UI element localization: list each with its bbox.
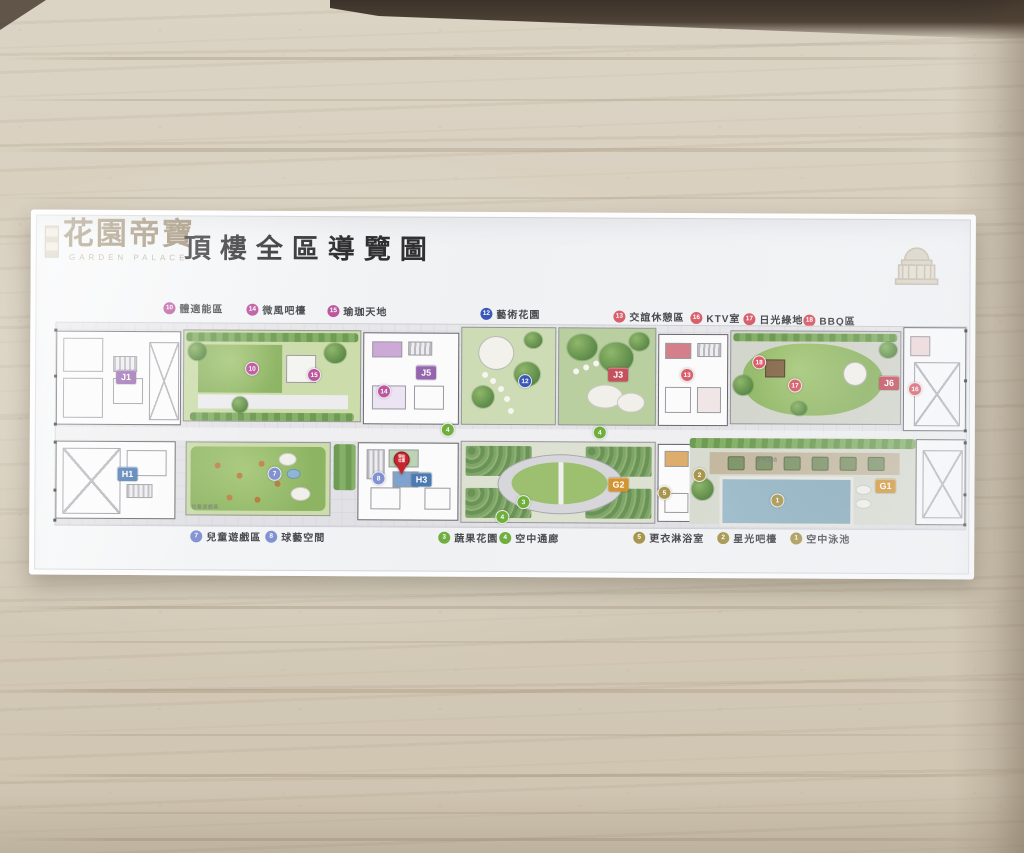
legend-item: 17 日光綠地: [743, 311, 803, 326]
building-badge-j6: J6: [879, 376, 899, 390]
splash-pad: [287, 469, 301, 479]
guide-map-sign-panel: 花園帝寶 GARDEN PALACE 頂樓全區導覽圖 10 體適能區 14 微風…: [29, 210, 976, 580]
fitness-yoga-garden: [183, 329, 361, 422]
legend-label: 藝術花園: [496, 306, 540, 321]
room: [910, 336, 930, 356]
legend-number-badge: 1: [790, 532, 802, 544]
tree: [524, 332, 542, 348]
legend-number-badge: 3: [438, 531, 450, 543]
page-title: 頂樓全區導覽圖: [184, 226, 436, 266]
legend-number-badge: 10: [163, 302, 175, 314]
area-caption-pool: 空中泳池: [756, 456, 778, 463]
legend-item: 1 空中泳池: [790, 531, 850, 546]
wall-streak: [0, 197, 1024, 199]
lounger: [855, 499, 871, 509]
brand-name-english: GARDEN PALACE: [63, 253, 195, 263]
legend-item: 15 瑜珈天地: [327, 303, 387, 318]
wall-streak: [0, 99, 1024, 101]
wall-streak: [0, 57, 1024, 60]
terrace: [149, 342, 179, 420]
tree: [791, 402, 807, 416]
building-badge-h1: H1: [118, 467, 138, 481]
brand-logo: 花園帝寶 GARDEN PALACE: [45, 218, 195, 263]
legend-item: 13 交誼休憩區: [613, 309, 684, 324]
legend-number-badge: 5: [633, 531, 645, 543]
map-marker-sky-pool: 1: [770, 493, 784, 507]
legend-item: 8 球藝空間: [265, 529, 325, 544]
room: [665, 451, 689, 467]
legend-item: 7 兒童遊戲區: [190, 528, 261, 543]
path: [198, 394, 348, 409]
wall-bottom-shade: [0, 789, 1024, 853]
pin-tail: [397, 465, 407, 479]
legend-label: 交誼休憩區: [629, 309, 684, 324]
legend-number-badge: 17: [743, 313, 755, 325]
tree: [567, 334, 597, 360]
building-crest-icon: [889, 242, 945, 298]
building-badge-h3: H3: [412, 473, 432, 487]
legend-label: 星光吧檯: [733, 530, 777, 545]
map-marker-star-bar: 2: [693, 468, 707, 482]
room: [665, 343, 691, 359]
map-marker-sun-lawn: 17: [788, 378, 802, 392]
map-marker-corridor: 4: [495, 510, 509, 524]
tree: [879, 342, 897, 358]
terrace: [62, 448, 120, 514]
rooftop-floor-plan: J1 J5 J3 J6 H1 H3 G2 G1 10 15 14 12 13 1…: [54, 322, 967, 531]
wall-streak: [0, 641, 1024, 643]
map-marker-art-garden: 12: [518, 374, 532, 388]
legend-label: 日光綠地: [759, 311, 803, 326]
building-outline-top-right: [903, 327, 967, 431]
lawn: [190, 446, 325, 511]
tree: [324, 343, 346, 363]
terrace: [922, 450, 962, 518]
map-marker-bbq: 18: [752, 355, 766, 369]
legend-label: 空中通廊: [515, 530, 559, 545]
wall-streak: [0, 606, 1024, 609]
map-marker-ball-space: 8: [372, 471, 386, 485]
play-mound: [279, 453, 297, 466]
map-marker-lounge: 13: [680, 368, 694, 382]
logo-seal-mark: [45, 226, 59, 258]
map-marker-fitness: 10: [245, 362, 259, 376]
building-outline-bottom-right: [915, 439, 965, 525]
legend-number-badge: 13: [613, 310, 625, 322]
legend-item: 10 體適能區: [163, 300, 223, 315]
legend-number-badge: 15: [327, 305, 339, 317]
legend-label: 兒童遊戲區: [206, 528, 261, 543]
room: [665, 387, 691, 413]
legend-label: 空中泳池: [806, 531, 850, 546]
cabana: [812, 457, 829, 471]
seating-deck: [843, 362, 867, 386]
brand-name: 花園帝寶: [63, 218, 195, 250]
legend-item: 12 藝術花園: [480, 306, 540, 321]
hedge: [186, 332, 358, 342]
cabana: [784, 456, 801, 470]
wall-streak: [0, 774, 1024, 777]
building-badge-j1: J1: [116, 370, 136, 384]
building-core-j3: [658, 334, 728, 426]
legend-item: 2 星光吧檯: [717, 530, 777, 545]
legend-label: 蔬果花園: [454, 530, 498, 545]
hedge: [333, 444, 355, 490]
room: [372, 341, 402, 357]
legend-label: 體適能區: [179, 300, 223, 315]
dimension-ticks-right: [964, 329, 967, 332]
building-badge-g1: G1: [875, 479, 895, 493]
stepping-stones: [482, 372, 488, 378]
map-marker-corridor: 4: [441, 423, 455, 437]
legend-number-badge: 12: [480, 307, 492, 319]
swimming-pool: [719, 476, 853, 527]
circular-plaza: [478, 336, 514, 370]
legend-item: 16 KTV室: [690, 310, 740, 325]
legend-label: KTV室: [706, 310, 740, 325]
legend-label: 球藝空間: [281, 529, 325, 544]
you-are-here-pin: 現在位置: [394, 451, 410, 477]
play-equipment-dots: [215, 462, 221, 468]
art-garden-west: [461, 327, 557, 425]
hedge: [690, 438, 916, 449]
tree: [629, 333, 649, 351]
bbq-pavilion: [765, 359, 785, 377]
sculpture-rock: [617, 393, 645, 413]
stepping-stones: [573, 368, 579, 374]
legend-number-badge: 4: [499, 531, 511, 543]
map-marker-breeze-bar: 14: [377, 384, 391, 398]
wall-top-shadow-band: [330, 0, 1024, 40]
stairs: [126, 484, 152, 498]
hedge: [190, 412, 354, 421]
legend-label: 更衣淋浴室: [649, 530, 704, 545]
legend-item: 14 微風吧檯: [246, 302, 306, 317]
tree: [232, 397, 248, 413]
legend-number-badge: 8: [265, 530, 277, 542]
map-marker-playground: 7: [268, 467, 282, 481]
building-badge-j5: J5: [416, 366, 436, 380]
legend-number-badge: 2: [717, 532, 729, 544]
pin-label: 現在位置: [398, 456, 406, 464]
legend-item: 5 更衣淋浴室: [633, 530, 704, 545]
building-badge-j3: J3: [608, 368, 628, 382]
room: [63, 338, 103, 372]
legend-label: 微風吧檯: [262, 302, 306, 317]
legend-label: 瑜珈天地: [343, 303, 387, 318]
legend-number-badge: 14: [246, 303, 258, 315]
wall-corner-shadow: [0, 0, 46, 30]
legend-number-badge: 16: [690, 311, 702, 323]
sunlight-lawn-garden: [730, 330, 901, 425]
stairs: [697, 343, 721, 357]
legend-item: 4 空中通廊: [499, 530, 559, 545]
map-marker-ktv: 16: [908, 382, 922, 396]
cabana: [728, 456, 745, 470]
stairs: [408, 342, 432, 356]
building-core-j5: [363, 332, 459, 425]
lawn: [198, 344, 282, 392]
hedge: [733, 333, 897, 342]
tree: [472, 386, 494, 408]
map-marker-shower-room: 5: [657, 486, 671, 500]
map-marker-corridor: 4: [593, 425, 607, 439]
room: [424, 488, 450, 510]
building-badge-g2: G2: [608, 478, 628, 492]
building-outline-bottom-left: [55, 441, 175, 520]
cabana: [840, 457, 857, 471]
room: [414, 386, 444, 410]
tree: [733, 375, 753, 395]
lounger: [855, 485, 871, 495]
cabana: [868, 457, 885, 471]
dimension-ticks-left: [54, 329, 57, 332]
map-marker-yoga: 15: [307, 368, 321, 382]
wall-streak: [0, 148, 1024, 152]
wall-streak: [0, 689, 1024, 693]
legend-number-badge: 7: [190, 530, 202, 542]
legend-number-badge: 18: [803, 314, 815, 326]
wall-streak: [0, 734, 1024, 736]
play-mound: [290, 487, 310, 501]
room: [697, 387, 721, 413]
room: [370, 487, 400, 509]
legend-item: 3 蔬果花園: [438, 530, 498, 545]
area-caption-playground: 兒童遊戲區: [191, 503, 219, 510]
tree: [188, 342, 206, 360]
map-marker-vegetable-garden: 3: [516, 495, 530, 509]
terrace: [914, 362, 960, 426]
room: [63, 378, 103, 418]
